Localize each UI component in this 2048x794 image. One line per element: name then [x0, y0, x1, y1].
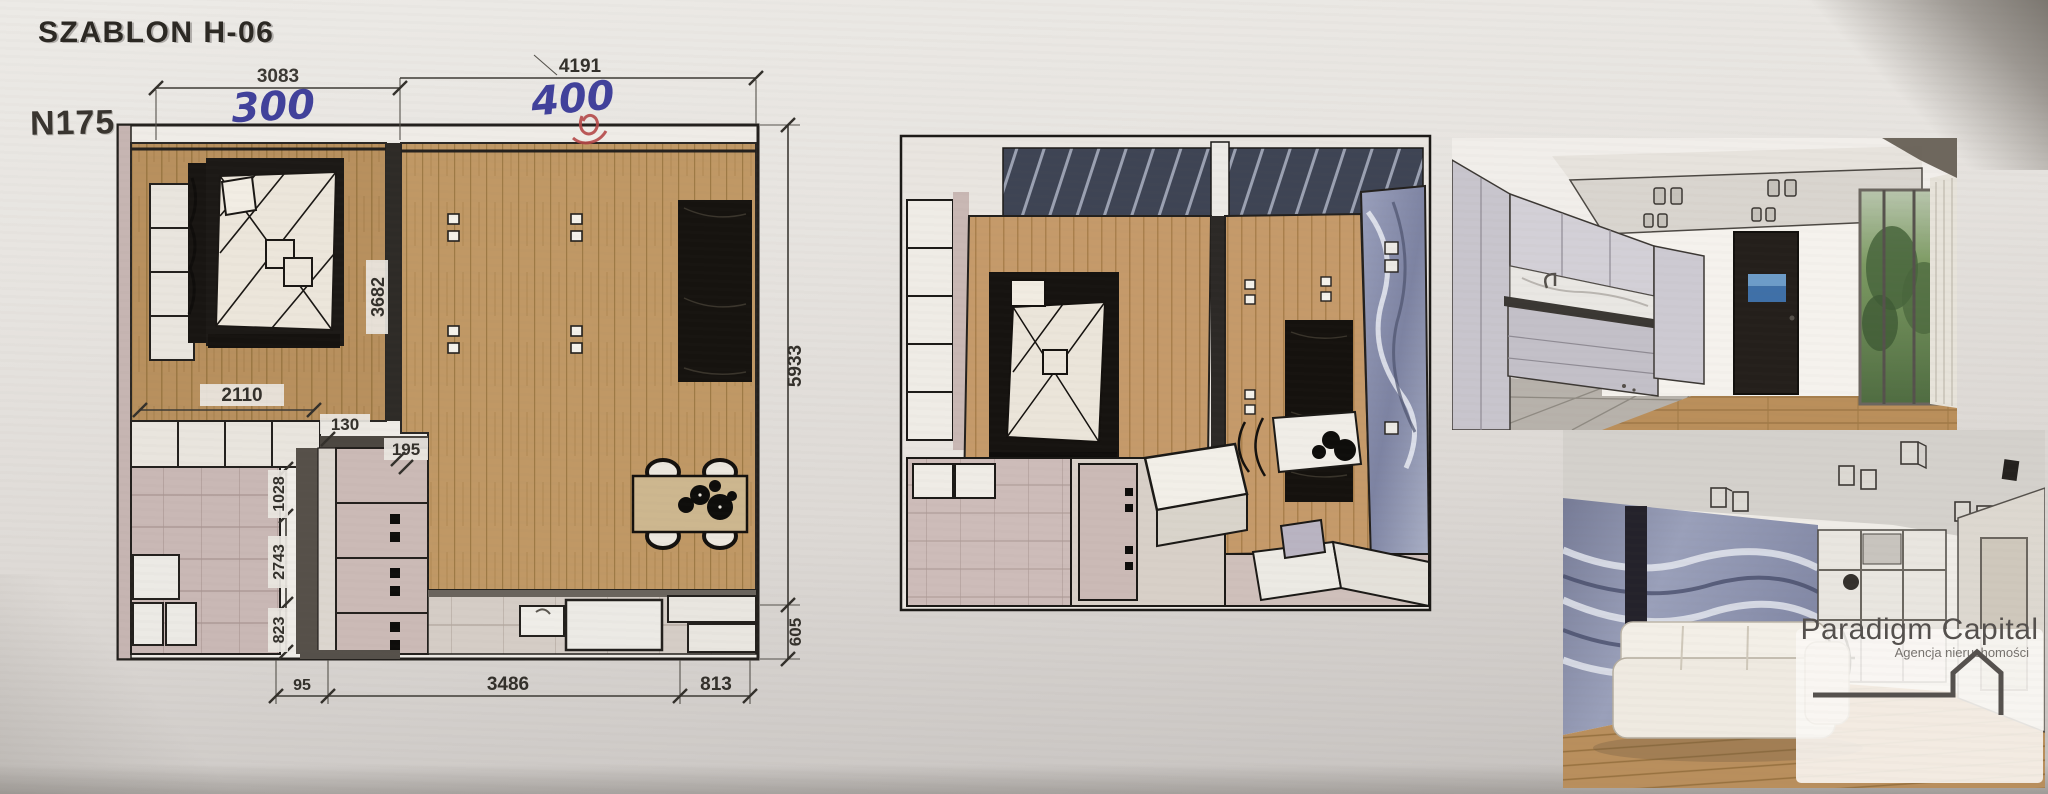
house-icon — [1805, 629, 2035, 715]
wardrobe-black — [678, 200, 752, 382]
bedroom-closet-column — [150, 184, 194, 360]
scanned-document: SZABLON H-06 N175 — [0, 0, 2048, 794]
axonometric-view — [893, 122, 1438, 622]
handwritten-400: 400 — [528, 72, 616, 125]
kitchen-sink — [520, 606, 564, 636]
dim-gap-195: 195 — [392, 440, 420, 459]
dim-bottom-small: 95 — [293, 677, 311, 694]
hall-wardrobes — [336, 448, 428, 654]
dim-right-lower: 605 — [786, 618, 805, 646]
bathroom — [131, 467, 280, 654]
hall-strip — [318, 448, 336, 654]
dim-closet-row: 2110 — [221, 385, 262, 406]
bedroom — [131, 143, 386, 421]
bathtub — [133, 555, 179, 599]
toilet — [166, 603, 196, 645]
page-title: SZABLON H-06 — [38, 16, 274, 50]
kitchen-cabinet — [668, 596, 756, 622]
entry-threshold — [300, 650, 400, 659]
dim-right-height: 5933 — [785, 345, 806, 387]
dim-hall-mid: 2743 — [271, 544, 288, 580]
handwritten-300: 300 — [230, 82, 316, 132]
hall-wall — [296, 448, 318, 654]
axon-bed — [989, 272, 1119, 464]
living-room — [401, 143, 756, 590]
dim-bottom-right: 813 — [700, 674, 732, 695]
dim-hall-lower: 823 — [271, 617, 288, 644]
dim-wall-130: 130 — [331, 415, 359, 434]
axon-closets — [907, 200, 953, 440]
bed — [188, 158, 344, 348]
paradigm-capital-logo: Paradigm Capital Agencja nieruchomości — [1796, 629, 2043, 783]
axon-marble-wall — [1361, 186, 1429, 562]
axon-bathroom — [907, 458, 1071, 606]
wall-speaker — [2002, 459, 2020, 481]
floor-plan-2d: 3682 — [88, 48, 832, 748]
kitchen-cabinet — [688, 624, 756, 652]
sink-bath — [133, 603, 163, 645]
dim-bedroom-depth: 3682 — [368, 277, 388, 317]
dim-hall-upper: 1028 — [271, 476, 288, 512]
kitchen-render — [1452, 138, 1957, 430]
kitchen-island — [566, 600, 662, 650]
dim-bottom-width: 3486 — [487, 674, 529, 695]
axon-tv-unit — [1285, 320, 1353, 502]
entrance-door — [1734, 232, 1798, 394]
